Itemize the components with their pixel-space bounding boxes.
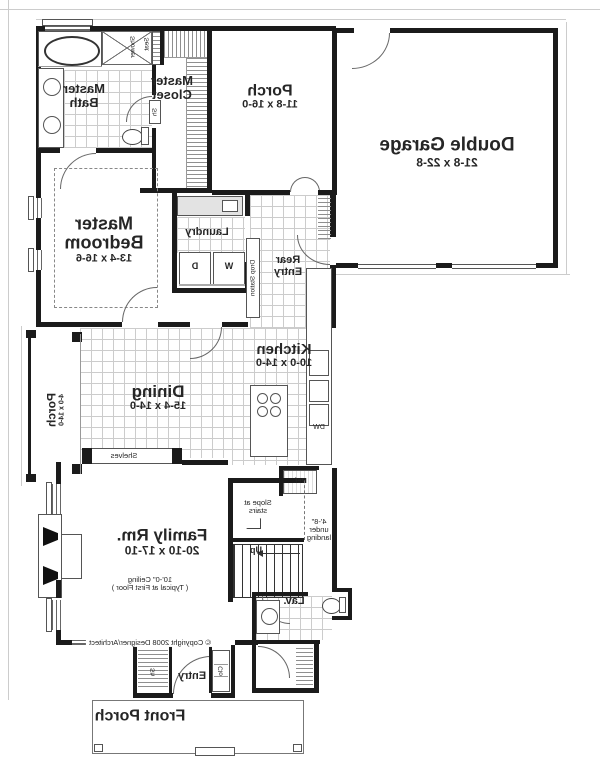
fridge-label: Ref.: [293, 477, 307, 485]
room-label-kitchen: Kitchen 10-0 x 14-0: [256, 342, 312, 370]
window-sill: [46, 598, 52, 632]
wall: [245, 190, 250, 216]
wall: [172, 288, 248, 293]
ceiling-note: 10'-0" Ceiling ( Typical at First Floor …: [112, 576, 189, 592]
porch-step: [195, 747, 235, 756]
shower-seat-hatch: [153, 32, 160, 64]
cooktop-burner: [270, 393, 281, 404]
utility-sink: [222, 200, 238, 212]
window-sill: [46, 482, 52, 516]
hearth: [61, 534, 82, 579]
room-label-dining: Dining 15-4 x 14-0: [130, 383, 186, 413]
page-edge-line: [0, 9, 600, 10]
porch-post: [26, 474, 36, 482]
room-label-master-closet: Master Closet: [145, 74, 199, 102]
room-name: Porch: [247, 82, 292, 99]
room-dims: 21-8 x 22-8: [379, 156, 514, 169]
eave-line: [566, 22, 567, 274]
closet-shelf-line: [214, 676, 228, 677]
room-label-master-bath: Master Bath: [55, 82, 113, 110]
label-under-landing: 4'-8" under landing: [302, 518, 336, 542]
room-dims: 20-10 x 17-10: [117, 545, 208, 558]
wall: [252, 688, 319, 693]
room-label-entry: Entry: [178, 671, 206, 683]
shelves-end: [82, 448, 92, 464]
wall: [56, 580, 61, 598]
wall: [36, 218, 41, 250]
room-dims: 10-0 x 14-0: [256, 358, 312, 370]
room-name: Master Bedroom: [65, 214, 144, 253]
wall: [211, 693, 235, 698]
room-label-rear-porch: Porch 11-8 x 16-0: [242, 82, 298, 111]
label-dryer: D: [192, 262, 199, 272]
floor-plan: Sh Drop Station DW Ref.: [0, 0, 600, 777]
entry-shelf-label: Sh: [149, 668, 156, 676]
stair-arrow-line: [262, 553, 300, 554]
lav-sink: [261, 608, 278, 625]
cooktop-burner: [270, 406, 281, 417]
room-label-garage: Double Garage 21-8 x 22-8: [379, 135, 514, 168]
wall: [96, 148, 156, 153]
kitchen-island: [250, 385, 288, 457]
wall: [36, 148, 60, 153]
wall: [169, 645, 172, 693]
wall: [336, 263, 358, 268]
room-name: Double Garage: [379, 134, 514, 155]
wall: [158, 322, 190, 327]
cooktop-burner: [257, 393, 268, 404]
porch-wall: [28, 330, 31, 482]
eave-line: [336, 274, 570, 275]
bathtub: [44, 36, 100, 66]
garage-door: [452, 264, 536, 269]
wall: [56, 462, 61, 484]
closet-shelf-line: [214, 664, 228, 665]
page-edge-line: [8, 0, 9, 700]
window: [52, 600, 61, 630]
toilet-tank: [339, 597, 346, 613]
wall: [390, 28, 558, 33]
wall: [436, 263, 452, 268]
closet-rod-hatch: [296, 648, 313, 686]
shelves-end: [172, 448, 182, 464]
ceiling-note-line2: ( Typical at First Floor ): [112, 584, 189, 592]
eave-line: [21, 326, 22, 486]
window: [52, 484, 61, 514]
wall: [231, 645, 235, 698]
wall: [222, 322, 248, 327]
label-slope: Slope at stairs: [242, 499, 274, 515]
wall: [252, 640, 320, 644]
appliance-base-line: [179, 284, 245, 286]
wall: [332, 28, 337, 195]
room-name: Kitchen: [256, 341, 311, 358]
room-label-side-porch: Porch 4-0 x 14-0: [46, 393, 67, 427]
copyright-text: © Copyright 2008 Designer/Architect: [86, 639, 214, 647]
label-shelves: Shelves: [111, 452, 138, 460]
porch-post: [26, 330, 36, 338]
toilet-bowl: [122, 129, 143, 145]
room-dims: 11-8 x 16-0: [242, 100, 298, 112]
garage-door: [358, 264, 436, 269]
wall: [252, 644, 256, 692]
label-washer: W: [225, 262, 234, 272]
wall: [133, 645, 137, 698]
dishwasher-label: DW: [313, 424, 325, 432]
pantry-hatch: [318, 198, 331, 240]
wall-oven: [309, 380, 329, 402]
room-label-rear-entry: Rear Entry: [268, 255, 308, 279]
wall: [314, 644, 319, 692]
wall: [553, 28, 558, 268]
wall: [207, 26, 212, 192]
entry-closet-label: Clo: [217, 666, 224, 676]
porch-edge-line: [80, 334, 81, 474]
room-name: Family Rm.: [117, 525, 208, 544]
room-label-laundry: Laundry: [185, 227, 228, 239]
wall: [235, 640, 258, 645]
cooktop-burner: [257, 406, 268, 417]
door-arc: [352, 33, 390, 69]
room-label-lav: Lav.: [283, 596, 304, 608]
room-dims: 13-4 x 16-6: [49, 254, 159, 266]
wall: [182, 460, 228, 465]
wall: [36, 270, 41, 327]
window: [33, 250, 42, 270]
room-label-front-porch: Front Porch: [95, 707, 186, 724]
wall: [36, 322, 122, 327]
label-shower: Shower: [129, 36, 136, 58]
wall: [133, 693, 173, 698]
wall: [212, 190, 290, 195]
slope-triangle-icon: [246, 518, 261, 529]
window-sill: [28, 248, 34, 272]
window-sill: [28, 196, 34, 220]
label-seat: Seat: [143, 37, 150, 50]
sink: [43, 116, 61, 134]
room-dims: 15-4 x 14-0: [130, 401, 186, 413]
door-arc: [290, 177, 305, 192]
wall-oven: [309, 404, 329, 426]
wall: [332, 616, 352, 620]
eave-line: [36, 19, 566, 20]
wall: [230, 538, 304, 542]
wall: [536, 263, 558, 268]
window-sill: [42, 19, 93, 26]
toilet-tank: [141, 127, 149, 145]
door-arc: [258, 646, 290, 678]
room-label-family: Family Rm. 20-10 x 17-10: [117, 526, 208, 557]
room-name: Dining: [132, 382, 185, 401]
wall: [56, 630, 61, 645]
shelf-label: Sh: [151, 108, 158, 116]
label-up: Up: [250, 546, 262, 556]
room-label-master-bedroom: Master Bedroom 13-4 x 16-6: [49, 215, 159, 266]
window: [33, 198, 42, 218]
room-name: Porch: [45, 393, 59, 427]
drop-station-label: Drop Station: [249, 260, 256, 296]
room-dims: 4-0 x 14-0: [59, 393, 67, 427]
closet-rod-hatch: [164, 31, 207, 57]
porch-post: [293, 744, 302, 752]
porch-post: [94, 744, 103, 752]
counter-line: [38, 66, 102, 67]
